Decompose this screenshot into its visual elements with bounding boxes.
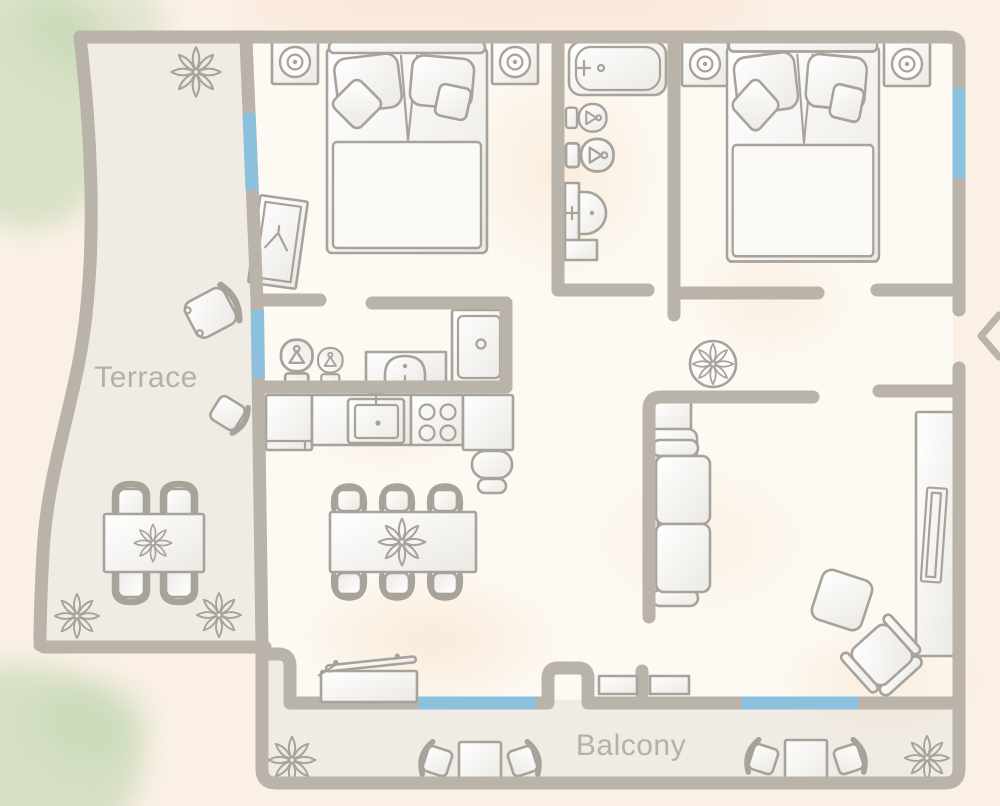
shower-icon (452, 310, 506, 384)
window-marker (249, 113, 252, 190)
dining-chair-icon (334, 486, 365, 511)
balcony-door-panel (599, 676, 637, 694)
dining-set (330, 486, 476, 598)
nightstand-lamp-icon (272, 40, 318, 84)
floor-plan-page: Terrace Balcony (0, 0, 1000, 806)
floor-plan: Terrace Balcony (0, 0, 1000, 806)
toilet-icon (318, 348, 343, 384)
dining-chair-icon (334, 573, 365, 598)
nightstand-lamp-icon (682, 42, 728, 86)
dining-chair-icon (430, 573, 461, 598)
cabinet (463, 395, 513, 450)
bathtub-icon (569, 42, 666, 95)
balcony-label: Balcony (576, 729, 686, 762)
toilet-icon (566, 139, 614, 171)
toilet-icon (281, 340, 313, 386)
nightstand-lamp-icon (884, 42, 930, 86)
balcony-door-panel (650, 676, 689, 694)
nightstand-lamp-icon (492, 40, 538, 84)
greenery-bottom (40, 680, 150, 760)
stove-icon (411, 395, 463, 445)
dining-chair-icon (382, 573, 413, 598)
potted-plant-icon (690, 341, 736, 387)
double-bed-icon (327, 42, 487, 253)
double-bed-icon (727, 40, 879, 262)
toilet-icon (566, 104, 606, 132)
media-unit (916, 412, 956, 656)
window-marker (258, 310, 259, 378)
dining-chair-icon (430, 486, 461, 511)
kitchen-sink-icon (348, 390, 404, 443)
terrace-label: Terrace (94, 361, 198, 394)
dining-chair-icon (382, 486, 413, 511)
